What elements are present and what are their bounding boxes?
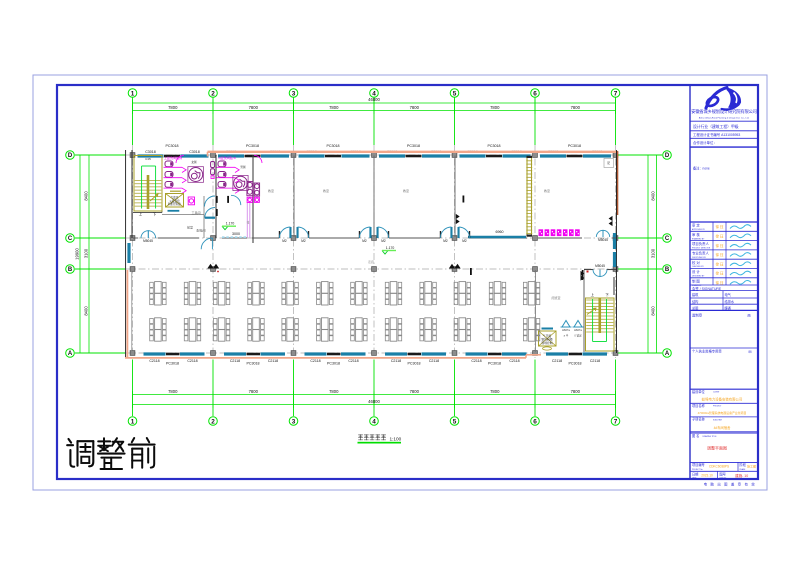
svg-text:徐 珏: 徐 珏 bbox=[716, 224, 724, 229]
svg-text:7800: 7800 bbox=[249, 105, 259, 110]
svg-text:3100: 3100 bbox=[84, 248, 89, 258]
svg-text:Anhui Urban-Rural Planning &: Anhui Urban-Rural Planning & Design Inst… bbox=[699, 117, 750, 120]
svg-text:施工图: 施工图 bbox=[747, 464, 756, 469]
svg-text:PC3018: PC3018 bbox=[247, 362, 260, 366]
svg-text:8400: 8400 bbox=[651, 306, 656, 316]
svg-text:C2118: C2118 bbox=[391, 359, 401, 363]
svg-text:8400: 8400 bbox=[651, 191, 656, 201]
svg-text:图 名: 图 名 bbox=[692, 433, 699, 438]
svg-text:M5045: M5045 bbox=[595, 264, 605, 268]
svg-text:前室: 前室 bbox=[187, 225, 193, 230]
svg-text:审 定: 审 定 bbox=[692, 223, 700, 228]
svg-text:C2118: C2118 bbox=[149, 359, 159, 363]
svg-text:C2118: C2118 bbox=[509, 359, 519, 363]
svg-text:7800: 7800 bbox=[571, 389, 581, 394]
svg-text:给排水: 给排水 bbox=[725, 299, 735, 304]
svg-text:A: A bbox=[68, 351, 73, 357]
svg-text:19900: 19900 bbox=[75, 248, 80, 260]
svg-text:C2118: C2118 bbox=[590, 359, 600, 363]
svg-text:1: 1 bbox=[131, 418, 135, 425]
svg-text:46800: 46800 bbox=[368, 399, 380, 404]
svg-text:B: B bbox=[665, 267, 670, 273]
svg-text:1.170: 1.170 bbox=[226, 222, 235, 226]
svg-text:校 对: 校 对 bbox=[692, 260, 700, 265]
svg-text:7800: 7800 bbox=[168, 389, 178, 394]
svg-text:PROJECT: PROJECT bbox=[713, 406, 722, 408]
svg-text:PC3018: PC3018 bbox=[568, 144, 581, 148]
svg-text:7800: 7800 bbox=[249, 389, 259, 394]
svg-text:C2118: C2118 bbox=[230, 359, 240, 363]
svg-text:工具间: 工具间 bbox=[191, 210, 200, 215]
svg-text:备注：none: 备注：none bbox=[693, 165, 710, 170]
svg-text:a 半: a 半 bbox=[564, 334, 569, 338]
svg-text:制柜控制盘: 制柜控制盘 bbox=[168, 202, 181, 206]
svg-text:PHASE: PHASE bbox=[740, 468, 747, 471]
svg-text:蚌埠电力设备安装有限公司: 蚌埠电力设备安装有限公司 bbox=[702, 397, 743, 402]
svg-text:SUB-ITEM: SUB-ITEM bbox=[713, 419, 722, 421]
svg-text:PC3018: PC3018 bbox=[569, 362, 582, 366]
svg-text:7800: 7800 bbox=[168, 105, 178, 110]
svg-text:5: 5 bbox=[453, 90, 457, 97]
svg-text:合作设计单位：: 合作设计单位： bbox=[693, 140, 717, 145]
svg-text:C3018: C3018 bbox=[189, 150, 200, 154]
svg-text:DESIGNED BY: DESIGNED BY bbox=[692, 276, 705, 278]
svg-text:女厕: 女厕 bbox=[191, 160, 197, 164]
svg-text:2023.10: 2023.10 bbox=[701, 474, 713, 478]
svg-text:C2118: C2118 bbox=[187, 359, 197, 363]
svg-text:PROJECT No.: PROJECT No. bbox=[692, 469, 703, 471]
svg-text:M2: M2 bbox=[282, 239, 287, 243]
svg-text:A: A bbox=[665, 351, 670, 357]
svg-text:46800: 46800 bbox=[368, 97, 380, 102]
svg-text:徐 珏: 徐 珏 bbox=[716, 252, 724, 257]
svg-text:(章): (章) bbox=[748, 350, 752, 354]
svg-text:项目负责人: 项目负责人 bbox=[692, 241, 710, 246]
svg-text:6960: 6960 bbox=[496, 230, 504, 234]
svg-text:C2118: C2118 bbox=[268, 359, 278, 363]
svg-text:徐 珏: 徐 珏 bbox=[716, 243, 724, 248]
svg-text:DISCIPLINE DIR.: DISCIPLINE DIR. bbox=[692, 257, 707, 259]
svg-text:C: C bbox=[68, 236, 73, 242]
svg-text:走廊: 走廊 bbox=[368, 259, 374, 264]
svg-text:审 核: 审 核 bbox=[692, 232, 700, 237]
svg-text:6: 6 bbox=[533, 90, 537, 97]
svg-text:总图: 总图 bbox=[692, 305, 698, 310]
svg-text:图号: 图号 bbox=[720, 471, 726, 476]
svg-text:徐 珏: 徐 珏 bbox=[716, 271, 724, 276]
svg-text:日期: 日期 bbox=[692, 471, 698, 476]
svg-text:设 计: 设 计 bbox=[692, 269, 700, 274]
svg-text:1.170: 1.170 bbox=[386, 246, 395, 250]
svg-text:(章): (章) bbox=[747, 314, 751, 318]
svg-text:7800: 7800 bbox=[490, 389, 500, 394]
svg-text:PC3018: PC3018 bbox=[166, 144, 179, 148]
svg-text:8400: 8400 bbox=[84, 191, 89, 201]
svg-text:7800: 7800 bbox=[490, 105, 500, 110]
svg-text:阶段: 阶段 bbox=[740, 462, 747, 467]
svg-text:6: 6 bbox=[533, 418, 537, 425]
svg-text:PC3018: PC3018 bbox=[488, 362, 501, 366]
svg-text:3: 3 bbox=[292, 90, 296, 97]
svg-text:C3018: C3018 bbox=[145, 150, 156, 154]
svg-text:CHECKED BY: CHECKED BY bbox=[692, 266, 704, 268]
svg-text:电气: 电气 bbox=[725, 292, 732, 297]
svg-text:0 锁定: 0 锁定 bbox=[574, 334, 582, 338]
svg-text:设计行业（建筑工程）甲级: 设计行业（建筑工程）甲级 bbox=[693, 124, 739, 129]
svg-text:8400: 8400 bbox=[84, 306, 89, 316]
svg-text:M2: M2 bbox=[301, 239, 306, 243]
svg-text:D: D bbox=[665, 153, 670, 159]
svg-text:3100: 3100 bbox=[651, 248, 656, 258]
svg-text:结构: 结构 bbox=[692, 299, 698, 304]
svg-text:1: 1 bbox=[131, 90, 135, 97]
svg-text:7: 7 bbox=[614, 90, 618, 97]
svg-text:监制章: 监制章 bbox=[692, 313, 703, 318]
svg-text:PC3018: PC3018 bbox=[488, 144, 501, 148]
svg-text:项目编号: 项目编号 bbox=[692, 462, 705, 467]
svg-text:7800: 7800 bbox=[410, 389, 420, 394]
svg-text:子项名称: 子项名称 bbox=[692, 417, 706, 422]
svg-text:M2: M2 bbox=[381, 239, 386, 243]
svg-text:C15: C15 bbox=[145, 157, 151, 161]
svg-text:专业负责人: 专业负责人 bbox=[692, 251, 710, 256]
svg-text:1:100: 1:100 bbox=[390, 436, 402, 441]
svg-text:7800: 7800 bbox=[410, 105, 420, 110]
svg-text:4: 4 bbox=[372, 418, 376, 425]
svg-text:徐 珏: 徐 珏 bbox=[716, 234, 724, 239]
svg-text:PC3018: PC3018 bbox=[166, 362, 179, 366]
svg-text:制 图: 制 图 bbox=[692, 278, 700, 283]
svg-text:配: 配 bbox=[607, 161, 610, 165]
svg-text:C2118: C2118 bbox=[471, 359, 481, 363]
svg-text:安徽省城乡规划设计研究院有限公司: 安徽省城乡规划设计研究院有限公司 bbox=[691, 108, 757, 115]
svg-text:7: 7 bbox=[614, 418, 618, 425]
svg-text:2: 2 bbox=[211, 418, 215, 425]
svg-text:3: 3 bbox=[292, 418, 296, 425]
svg-text:教室: 教室 bbox=[268, 188, 274, 193]
svg-text:7800: 7800 bbox=[571, 105, 581, 110]
svg-text:调整平面图: 调整平面图 bbox=[707, 445, 727, 451]
svg-text:上盥洗间贴砖: 上盥洗间贴砖 bbox=[164, 155, 183, 160]
svg-text:暖通: 暖通 bbox=[725, 305, 732, 310]
svg-text:4#车间宿舍: 4#车间宿舍 bbox=[714, 425, 732, 430]
svg-text:CLIENT: CLIENT bbox=[713, 392, 720, 394]
svg-text:B: B bbox=[68, 267, 73, 273]
svg-text:徐 珏: 徐 珏 bbox=[716, 280, 724, 285]
svg-text:现场控制: 现场控制 bbox=[541, 341, 552, 345]
svg-text:DRAWING TITLE: DRAWING TITLE bbox=[703, 435, 718, 438]
svg-text:建筑: 建筑 bbox=[692, 292, 699, 297]
svg-text:PC3018: PC3018 bbox=[327, 362, 340, 366]
svg-text:M5045: M5045 bbox=[598, 238, 608, 242]
svg-text:H827a: H827a bbox=[562, 328, 570, 332]
svg-text:M2: M2 bbox=[362, 239, 367, 243]
svg-text:工程设计证书编号 A131005953: 工程设计证书编号 A131005953 bbox=[693, 132, 740, 137]
svg-text:电 脑 出 图 盖 章 有 效: 电 脑 出 图 盖 章 有 效 bbox=[704, 481, 756, 486]
svg-text:5: 5 bbox=[453, 418, 457, 425]
svg-text:C: C bbox=[665, 236, 670, 242]
svg-text:H827a: H827a bbox=[574, 328, 582, 332]
svg-text:C2118: C2118 bbox=[552, 359, 562, 363]
svg-text:C2118: C2118 bbox=[310, 359, 320, 363]
svg-text:47000t/a管理系统电器设备产业化项目: 47000t/a管理系统电器设备产业化项目 bbox=[698, 410, 747, 415]
svg-text:M5045: M5045 bbox=[143, 239, 153, 243]
svg-text:2: 2 bbox=[211, 90, 215, 97]
svg-text:个人执业资格专用章: 个人执业资格专用章 bbox=[692, 349, 722, 354]
svg-text:配电间: 配电间 bbox=[196, 228, 205, 233]
svg-text:DWG No.: DWG No. bbox=[720, 477, 728, 479]
svg-text:EXAMINED BY: EXAMINED BY bbox=[692, 237, 705, 240]
svg-text:建施- 10: 建施- 10 bbox=[735, 473, 748, 478]
svg-text:C2118: C2118 bbox=[348, 359, 358, 363]
svg-text:APPROVED BY: APPROVED BY bbox=[692, 228, 706, 231]
svg-text:7800: 7800 bbox=[329, 105, 339, 110]
svg-text:PC3018: PC3018 bbox=[327, 144, 340, 148]
svg-text:M2: M2 bbox=[462, 239, 467, 243]
svg-text:3000: 3000 bbox=[232, 232, 240, 236]
svg-text:项目名称: 项目名称 bbox=[692, 403, 706, 408]
svg-text:7800: 7800 bbox=[329, 389, 339, 394]
svg-text:徐 珏: 徐 珏 bbox=[716, 261, 724, 266]
svg-text:PROJECT DIRECTOR: PROJECT DIRECTOR bbox=[692, 248, 711, 250]
svg-text:建设单位: 建设单位 bbox=[692, 389, 706, 394]
svg-text:A盥洗间贴 B: A盥洗间贴 B bbox=[218, 155, 235, 160]
svg-text:阅览室: 阅览室 bbox=[551, 295, 560, 300]
svg-text:PC3018: PC3018 bbox=[246, 144, 259, 148]
svg-text:排: 排 bbox=[247, 221, 250, 225]
svg-text:PC3018: PC3018 bbox=[407, 144, 420, 148]
svg-text:教室: 教室 bbox=[323, 188, 329, 193]
svg-text:PC3018: PC3018 bbox=[408, 362, 421, 366]
svg-text:CDKC6038PS: CDKC6038PS bbox=[709, 465, 729, 469]
svg-text:男厕: 男厕 bbox=[240, 165, 246, 169]
svg-text:M2: M2 bbox=[443, 239, 448, 243]
svg-text:教室: 教室 bbox=[544, 188, 550, 193]
svg-text:D: D bbox=[68, 153, 73, 159]
svg-text:C2118: C2118 bbox=[429, 359, 439, 363]
svg-text:教室: 教室 bbox=[403, 188, 409, 193]
